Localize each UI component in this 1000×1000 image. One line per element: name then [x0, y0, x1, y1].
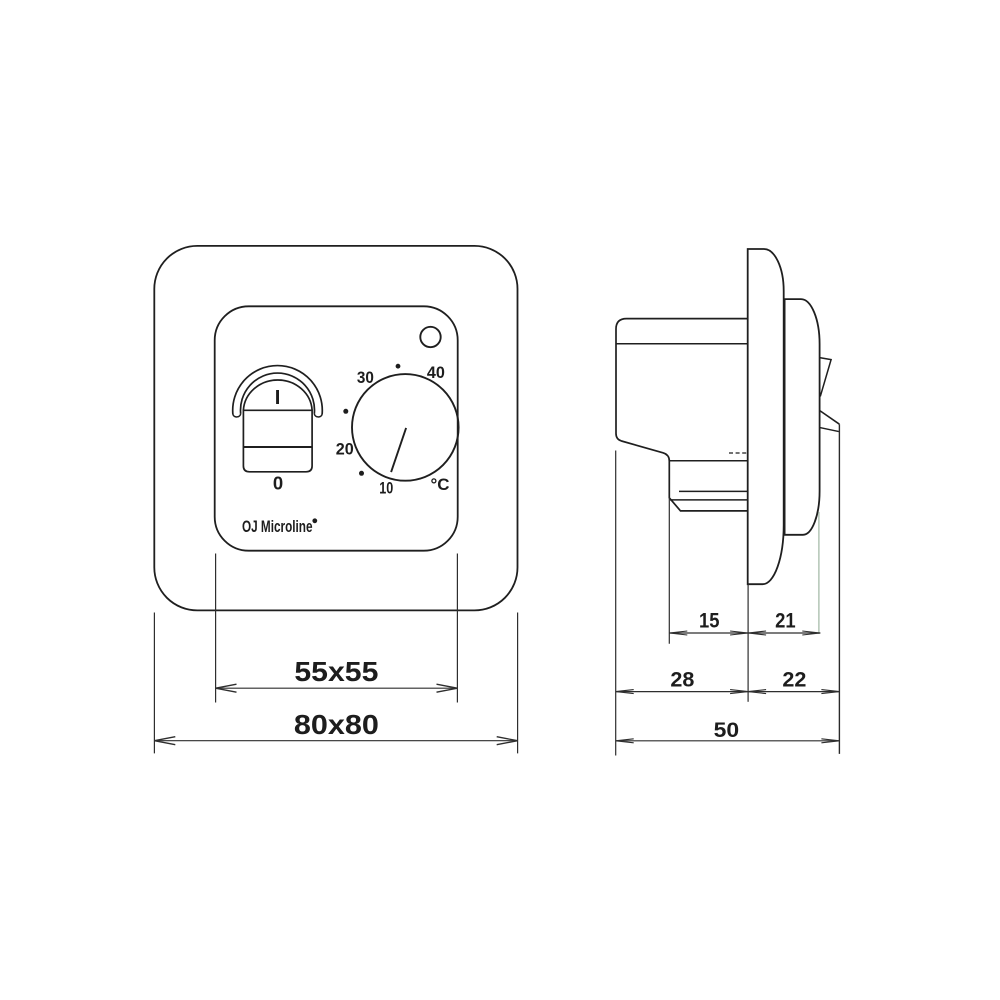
svg-text:80x80: 80x80: [294, 709, 379, 740]
svg-text:21: 21: [775, 610, 796, 633]
svg-text:55x55: 55x55: [294, 656, 378, 687]
svg-text:40: 40: [427, 364, 445, 382]
svg-text:22: 22: [782, 668, 806, 691]
svg-text:10: 10: [379, 479, 393, 497]
svg-text:28: 28: [670, 668, 694, 691]
svg-text:OJ Microline: OJ Microline: [242, 517, 313, 536]
svg-text:50: 50: [714, 718, 740, 742]
svg-text:0: 0: [273, 473, 283, 494]
svg-text:15: 15: [699, 610, 720, 633]
svg-text:30: 30: [357, 369, 374, 387]
svg-text:°C: °C: [431, 476, 450, 494]
svg-text:20: 20: [336, 440, 354, 458]
